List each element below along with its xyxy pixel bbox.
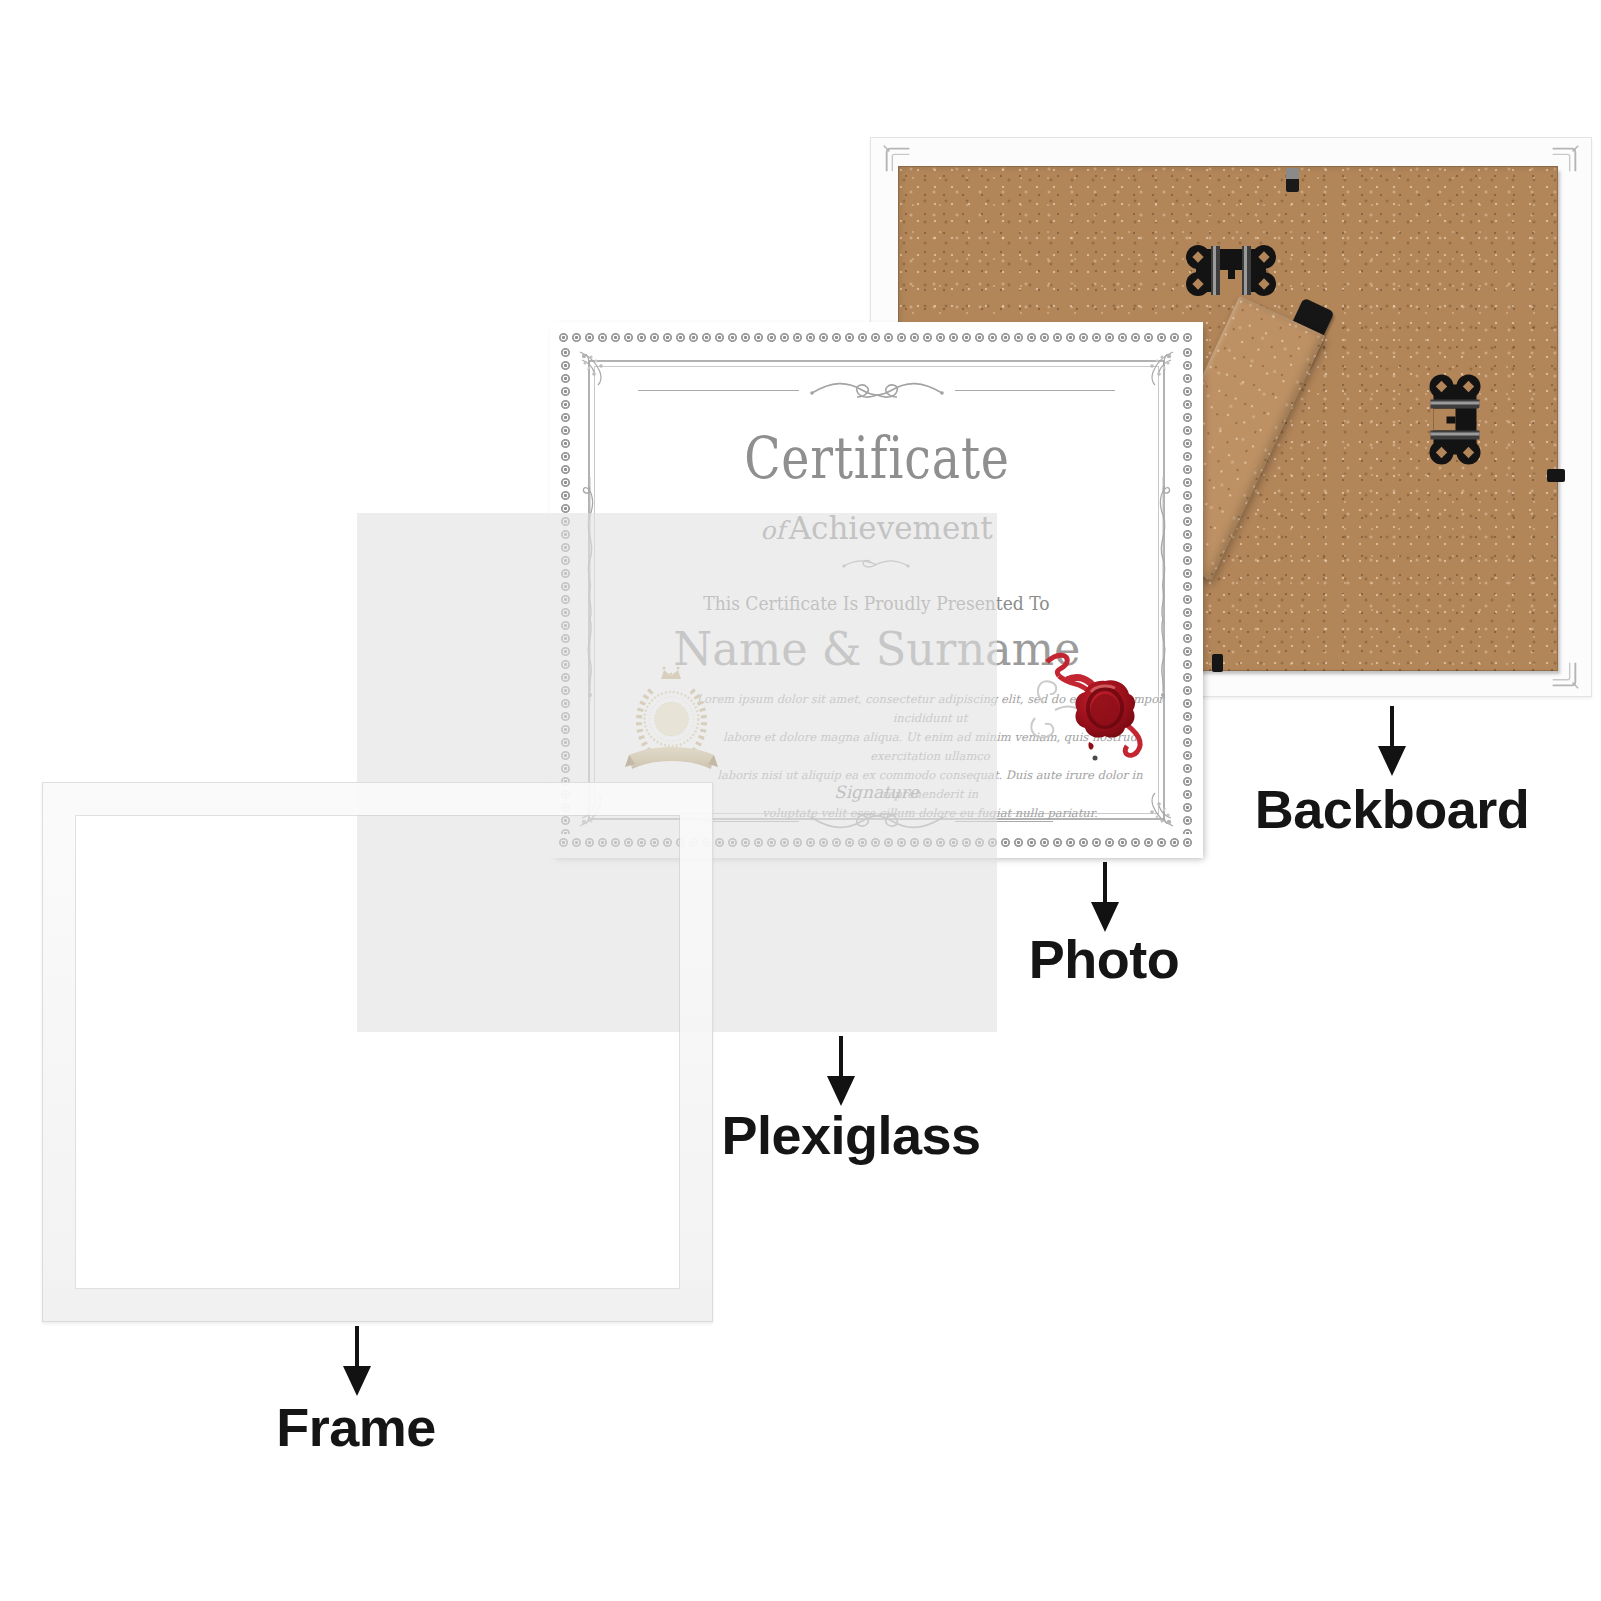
certificate-border-right: [1179, 346, 1196, 834]
corner-mark-icon: [1547, 657, 1581, 691]
arrow-head: [827, 1076, 855, 1106]
label-photo: Photo: [1029, 928, 1179, 990]
arrow-head: [343, 1366, 371, 1396]
label-frame: Frame: [276, 1396, 436, 1458]
floral-corner-icon: [1137, 348, 1177, 388]
ornament-rule: [638, 390, 799, 391]
label-backboard: Backboard: [1255, 778, 1530, 840]
corner-mark-icon: [881, 143, 915, 177]
down-arrow-icon: [1090, 862, 1120, 932]
frame-inner-edge: [75, 815, 680, 1289]
ornament-rule: [955, 390, 1116, 391]
retainer-clip: [1286, 168, 1299, 192]
flourish-icon: [807, 377, 947, 403]
arrow-shaft: [1390, 706, 1394, 746]
label-plexiglass: Plexiglass: [721, 1104, 980, 1166]
floral-corner-icon: [576, 348, 616, 388]
retainer-clip: [1547, 469, 1565, 482]
down-arrow-icon: [826, 1036, 856, 1106]
sawtooth-hanger-icon: [1428, 373, 1483, 467]
arrow-shaft: [839, 1036, 843, 1076]
wax-seal-icon: [1015, 640, 1165, 780]
certificate-title: Certificate: [550, 426, 1203, 490]
down-arrow-icon: [1377, 706, 1407, 776]
corner-mark-icon: [1547, 143, 1581, 177]
arrow-shaft: [355, 1326, 359, 1366]
product-parts-diagram: Certificate ofAchievement This Certifica…: [0, 0, 1601, 1601]
frame-part: [42, 782, 713, 1322]
arrow-shaft: [1103, 862, 1107, 902]
down-arrow-icon: [342, 1326, 372, 1396]
sawtooth-hanger-icon: [1184, 243, 1278, 298]
retainer-clip: [1212, 654, 1223, 672]
certificate-border-top: [557, 329, 1196, 346]
top-ornament-row: [638, 376, 1115, 404]
arrow-head: [1378, 746, 1406, 776]
